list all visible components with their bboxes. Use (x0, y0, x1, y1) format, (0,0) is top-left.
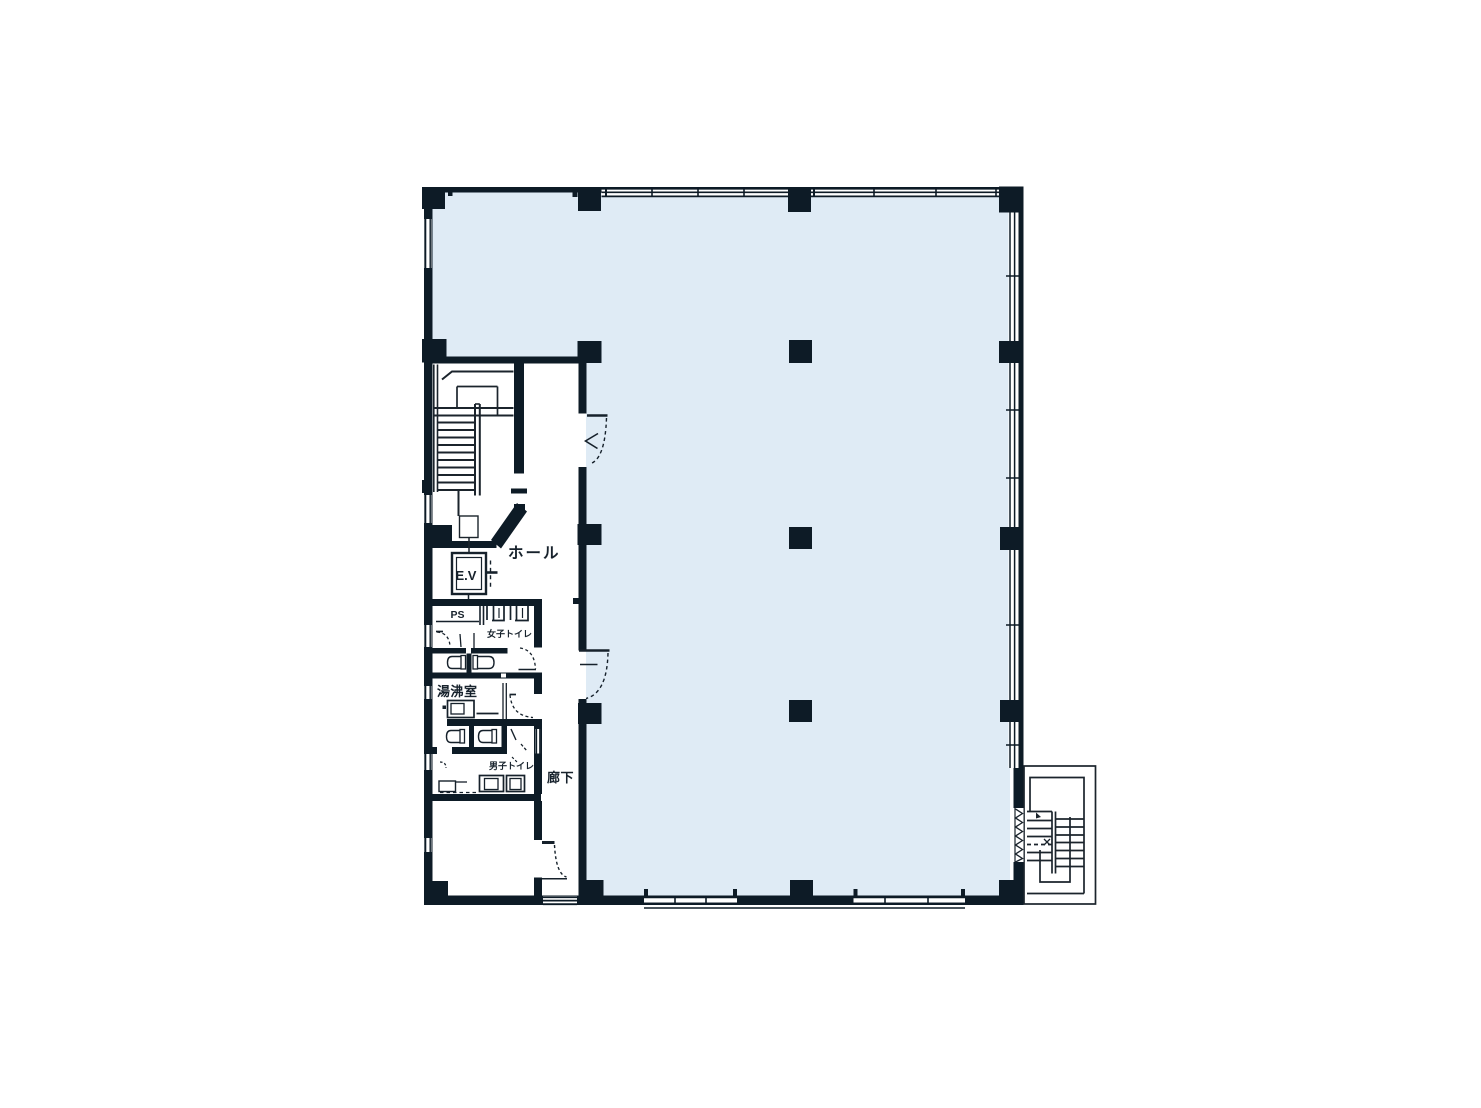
svg-text:ホール: ホール (508, 544, 561, 562)
svg-text:湯沸室: 湯沸室 (437, 684, 478, 699)
svg-text:E.V: E.V (455, 568, 476, 583)
svg-text:女子トイレ: 女子トイレ (487, 628, 532, 639)
svg-text:廊下: 廊下 (547, 770, 574, 785)
svg-text:PS: PS (450, 609, 464, 621)
svg-text:男子トイレ: 男子トイレ (489, 761, 534, 771)
